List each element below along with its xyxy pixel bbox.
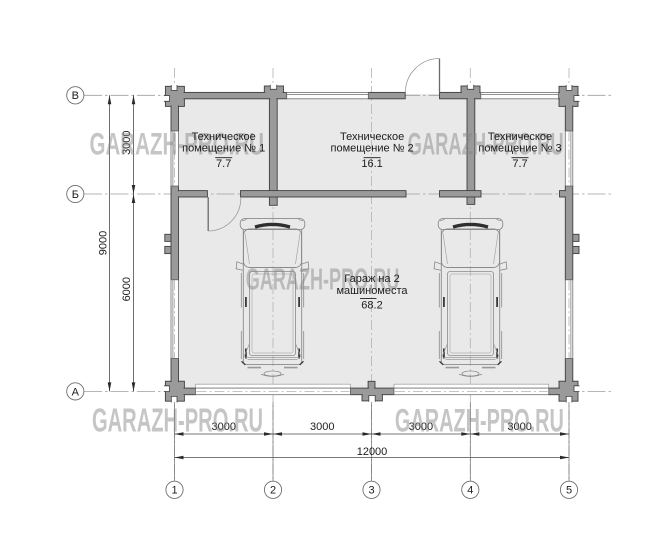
svg-text:В: В [72, 90, 79, 102]
svg-text:3000: 3000 [310, 421, 334, 433]
svg-text:12000: 12000 [357, 446, 388, 458]
svg-text:68.2: 68.2 [361, 299, 382, 311]
svg-text:6000: 6000 [121, 277, 133, 301]
svg-text:7.7: 7.7 [216, 158, 231, 170]
svg-text:Б: Б [72, 189, 79, 201]
svg-text:Техническое: Техническое [340, 131, 404, 143]
svg-text:помещение № 2: помещение № 2 [331, 143, 414, 155]
svg-text:А: А [72, 386, 80, 398]
svg-text:9000: 9000 [97, 231, 109, 255]
svg-text:GARAZH-PRO.RU: GARAZH-PRO.RU [92, 403, 263, 440]
svg-text:16.1: 16.1 [361, 158, 382, 170]
svg-text:Гараж на 2: Гараж на 2 [344, 273, 399, 285]
svg-text:2: 2 [270, 485, 276, 497]
svg-text:Техническое: Техническое [192, 131, 256, 143]
svg-text:7.7: 7.7 [512, 158, 527, 170]
svg-text:помещение № 1: помещение № 1 [182, 143, 265, 155]
svg-text:Техническое: Техническое [488, 131, 552, 143]
svg-text:1: 1 [171, 485, 177, 497]
svg-text:GARAZH-PRO.RU: GARAZH-PRO.RU [395, 403, 564, 439]
svg-text:3: 3 [368, 485, 374, 497]
svg-text:4: 4 [467, 485, 473, 497]
svg-text:5: 5 [566, 485, 572, 497]
svg-text:помещение № 3: помещение № 3 [478, 143, 561, 155]
svg-text:машиноместа: машиноместа [336, 285, 408, 297]
